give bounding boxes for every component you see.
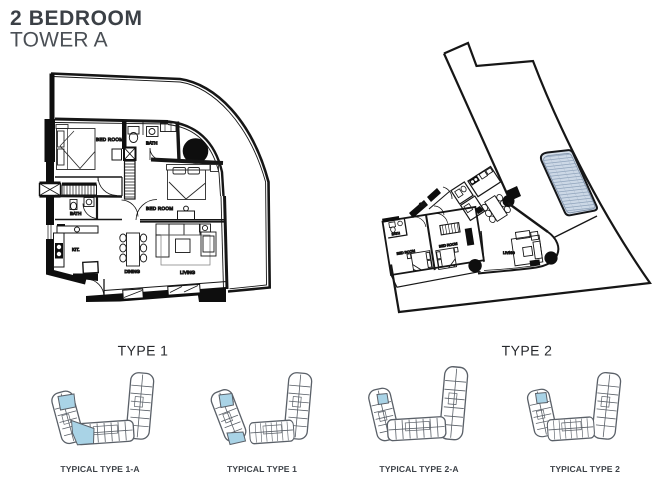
svg-text:TYPE 1: TYPE 1 [118, 343, 169, 359]
svg-text:DINING: DINING [125, 269, 141, 274]
svg-text:05: 05 [419, 202, 426, 209]
svg-text:TYPICAL TYPE 2: TYPICAL TYPE 2 [550, 464, 620, 474]
svg-text:TYPE 2: TYPE 2 [502, 343, 553, 359]
svg-text:BED ROOM: BED ROOM [396, 249, 415, 256]
svg-text:BED ROOM: BED ROOM [96, 137, 123, 142]
svg-text:BATH: BATH [146, 141, 157, 146]
svg-text:2 BEDROOM: 2 BEDROOM [10, 7, 143, 30]
svg-text:LIVING: LIVING [503, 251, 515, 255]
svg-text:BED ROOM: BED ROOM [146, 206, 173, 211]
svg-text:TOWER A: TOWER A [10, 29, 108, 52]
svg-text:BATH: BATH [70, 211, 81, 216]
svg-text:TYPICAL TYPE 1-A: TYPICAL TYPE 1-A [60, 464, 139, 474]
svg-text:TYPICAL TYPE 2-A: TYPICAL TYPE 2-A [379, 464, 458, 474]
svg-text:LIVING: LIVING [180, 270, 195, 275]
svg-text:TYPICAL TYPE 1: TYPICAL TYPE 1 [227, 464, 297, 474]
svg-text:KIT.: KIT. [72, 247, 80, 252]
